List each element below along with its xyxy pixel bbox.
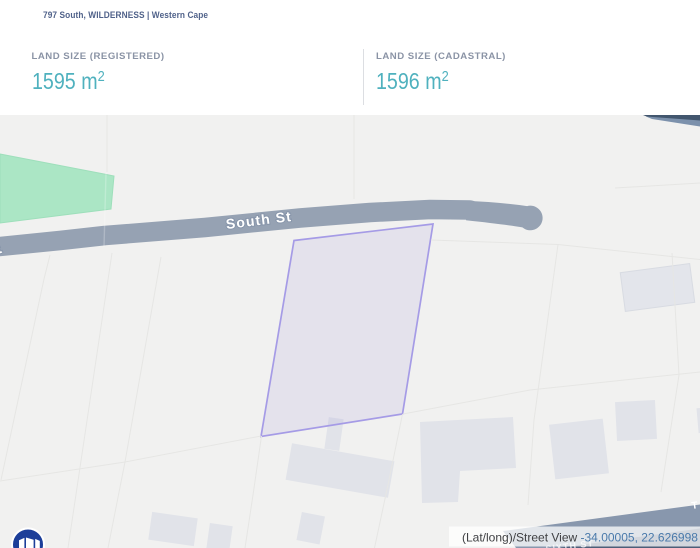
svg-text:(Lat/long)/Street View -34.000: (Lat/long)/Street View -34.00005, 22.626…	[462, 531, 698, 545]
